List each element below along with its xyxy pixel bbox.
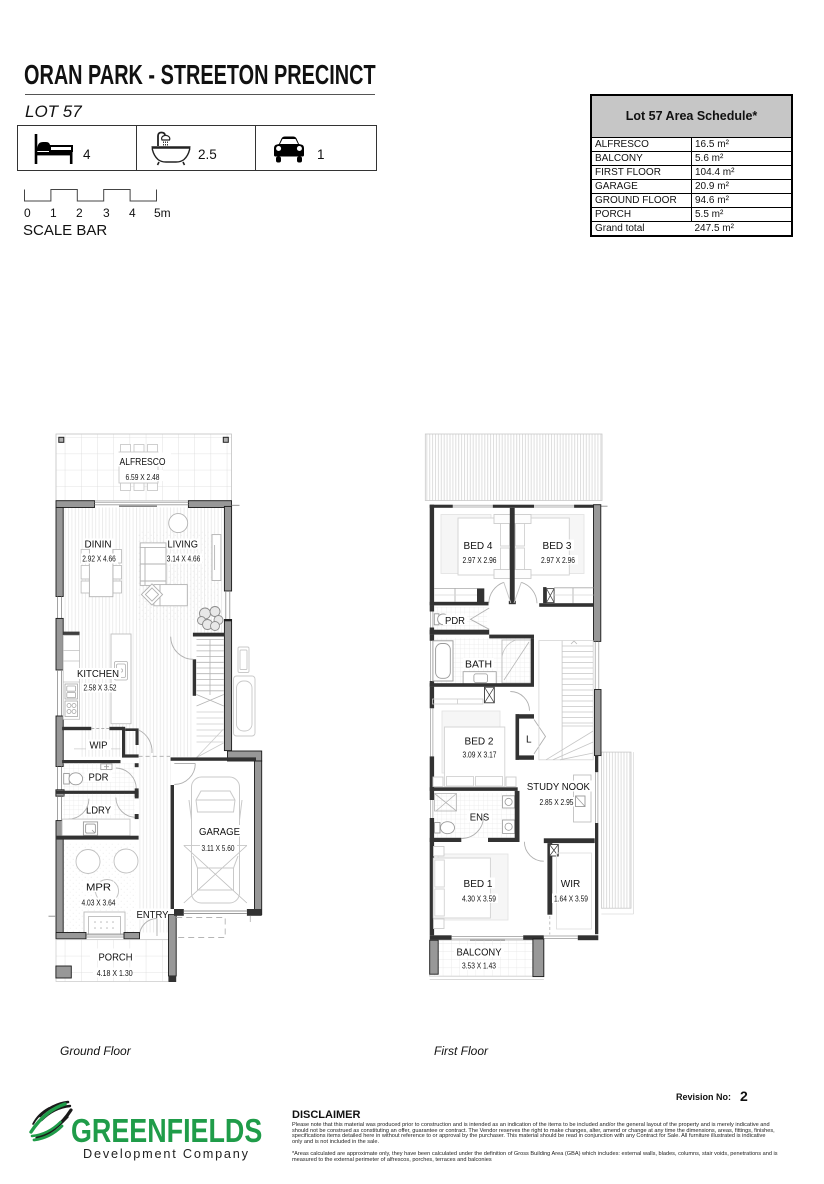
svg-text:PORCH: PORCH [99,951,133,963]
svg-text:2.92 X 4.66: 2.92 X 4.66 [82,555,116,564]
svg-text:3.11 X 5.60: 3.11 X 5.60 [202,844,236,853]
svg-text:3.14 X 4.66: 3.14 X 4.66 [167,555,201,564]
svg-text:PDR: PDR [89,773,109,784]
svg-text:2.85 X 2.95: 2.85 X 2.95 [540,798,575,807]
svg-text:STUDY NOOK: STUDY NOOK [527,781,590,793]
svg-text:3.53 X 1.43: 3.53 X 1.43 [462,961,496,970]
svg-text:4.03 X 3.64: 4.03 X 3.64 [82,899,117,908]
svg-text:2.97 X 2.96: 2.97 X 2.96 [463,556,497,565]
svg-text:ALFRESCO: ALFRESCO [120,457,166,468]
svg-text:KITCHEN: KITCHEN [77,669,119,680]
svg-text:MPR: MPR [86,883,111,894]
svg-text:BED 4: BED 4 [464,541,493,552]
svg-text:BATH: BATH [465,659,492,670]
svg-text:WIR: WIR [561,879,581,890]
svg-text:3.09 X 3.17: 3.09 X 3.17 [463,750,497,759]
svg-text:BED 1: BED 1 [464,879,493,890]
svg-text:2.97 X 2.96: 2.97 X 2.96 [541,556,575,565]
svg-text:DININ: DININ [85,540,112,551]
svg-text:WIP: WIP [90,741,108,752]
svg-text:PDR: PDR [445,616,465,627]
svg-text:BALCONY: BALCONY [457,947,502,959]
svg-text:BED 3: BED 3 [543,541,572,552]
svg-text:LDRY: LDRY [86,806,111,817]
svg-text:L: L [526,735,532,746]
svg-text:GARAGE: GARAGE [199,826,240,838]
svg-text:LIVING: LIVING [167,540,198,551]
svg-text:BED 2: BED 2 [465,736,494,747]
svg-text:ENS: ENS [470,813,490,824]
svg-text:6.59 X 2.48: 6.59 X 2.48 [126,473,160,482]
svg-text:2.58 X 3.52: 2.58 X 3.52 [84,684,117,693]
svg-text:1.64 X 3.59: 1.64 X 3.59 [554,895,588,904]
svg-text:4.30 X 3.59: 4.30 X 3.59 [462,895,496,904]
svg-text:4.18 X 1.30: 4.18 X 1.30 [97,969,134,978]
